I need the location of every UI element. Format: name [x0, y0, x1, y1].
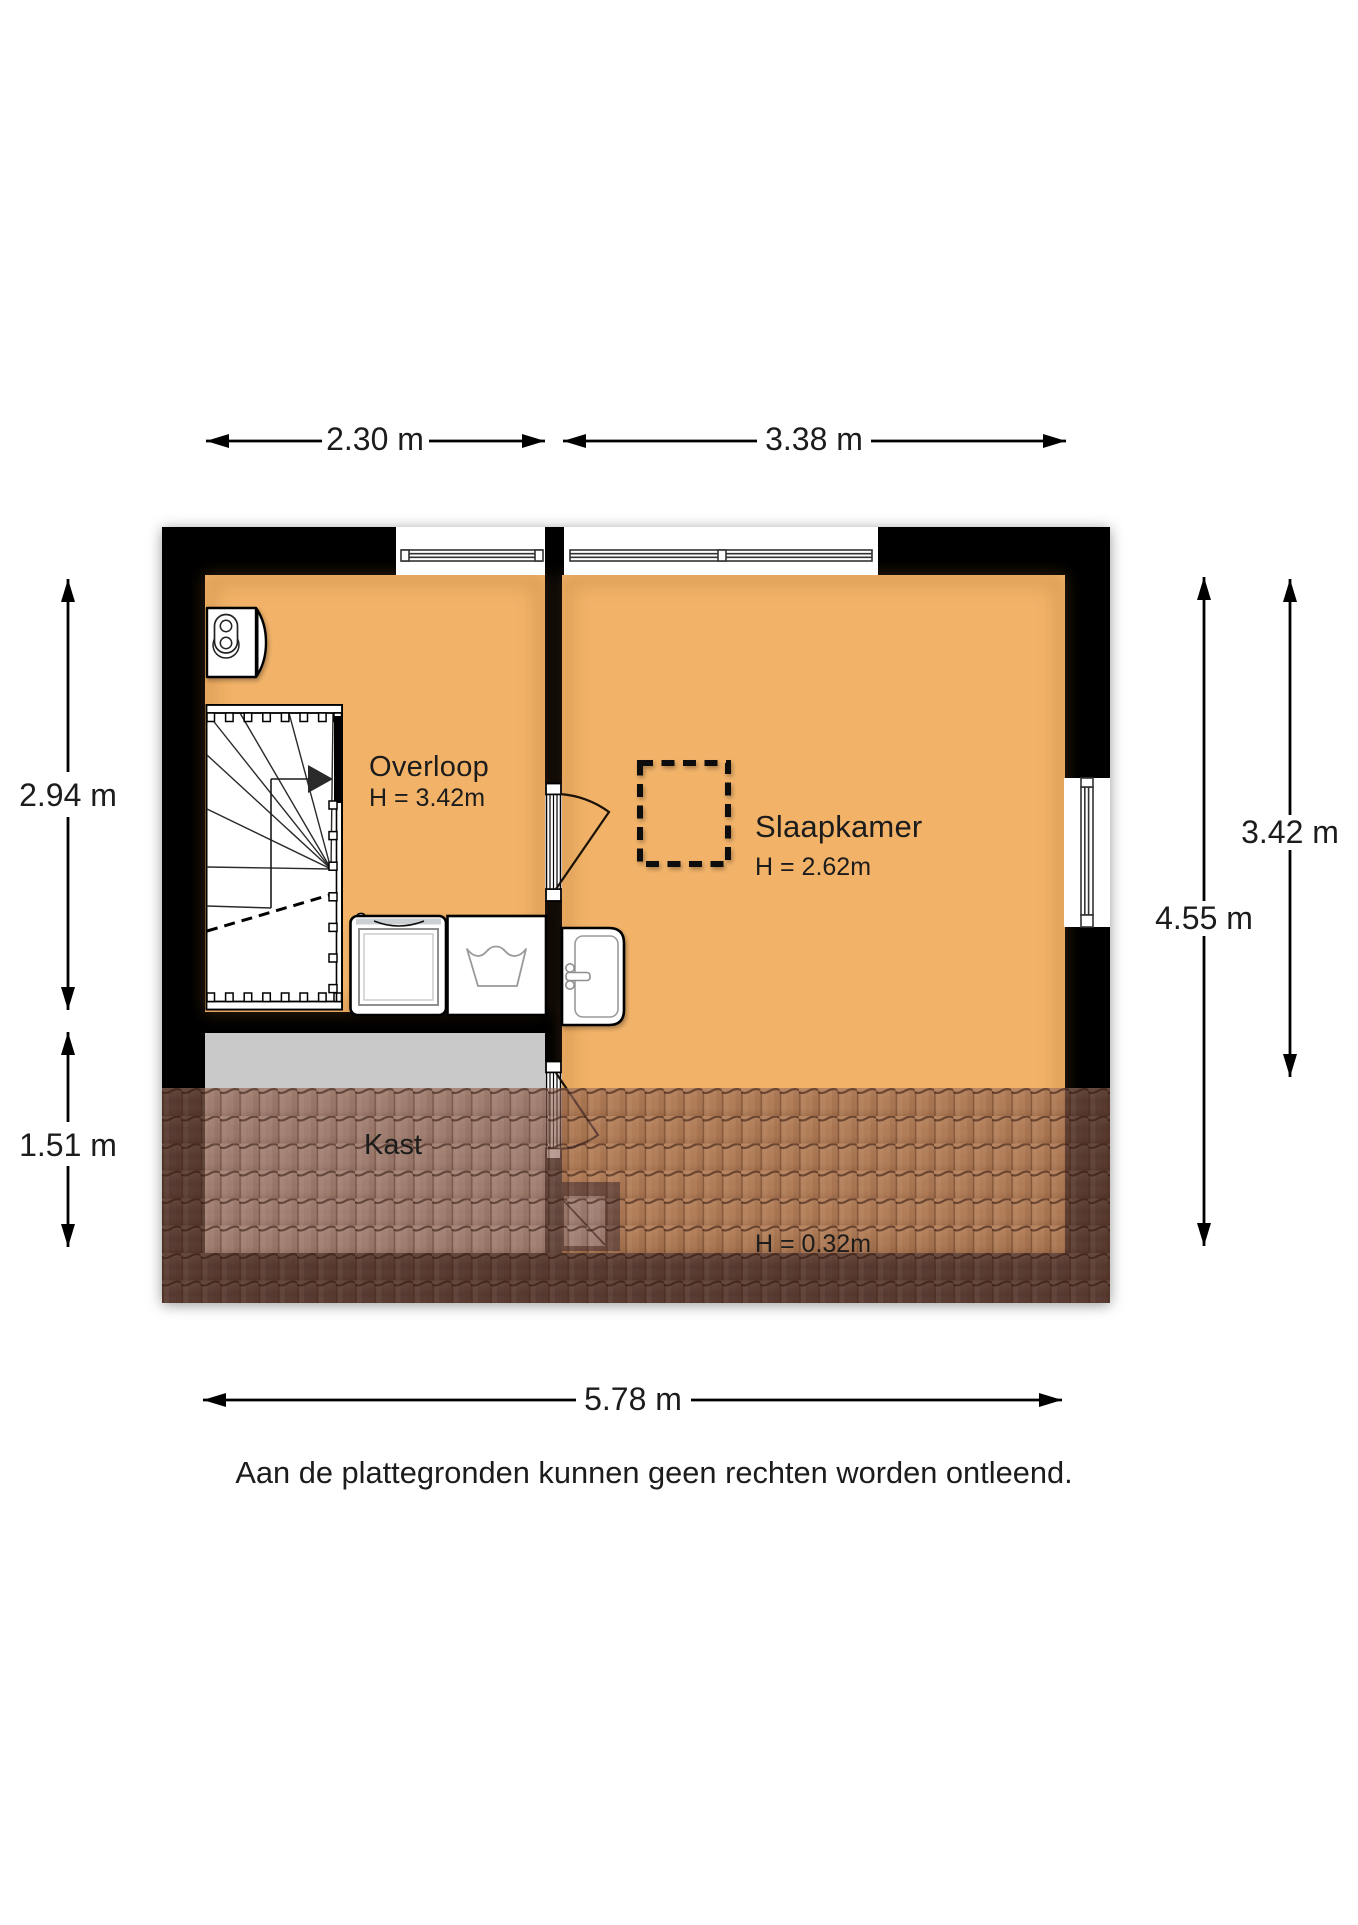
svg-text:Aan de plattegronden kunnen ge: Aan de plattegronden kunnen geen rechten… [235, 1455, 1072, 1490]
svg-text:H = 2.62m: H = 2.62m [755, 853, 871, 881]
svg-text:Slaapkamer: Slaapkamer [755, 809, 922, 844]
svg-text:3.38 m: 3.38 m [765, 421, 863, 457]
svg-text:5.78 m: 5.78 m [584, 1381, 682, 1417]
svg-text:H = 3.42m: H = 3.42m [369, 784, 485, 812]
svg-text:2.94 m: 2.94 m [19, 777, 117, 813]
svg-text:3.42 m: 3.42 m [1241, 814, 1339, 850]
svg-text:H = 0.32m: H = 0.32m [755, 1230, 871, 1258]
svg-text:4.55 m: 4.55 m [1155, 900, 1253, 936]
svg-text:1.51 m: 1.51 m [19, 1127, 117, 1163]
svg-text:Kast: Kast [364, 1129, 422, 1161]
svg-text:2.30 m: 2.30 m [326, 421, 424, 457]
svg-text:Overloop: Overloop [369, 751, 489, 783]
